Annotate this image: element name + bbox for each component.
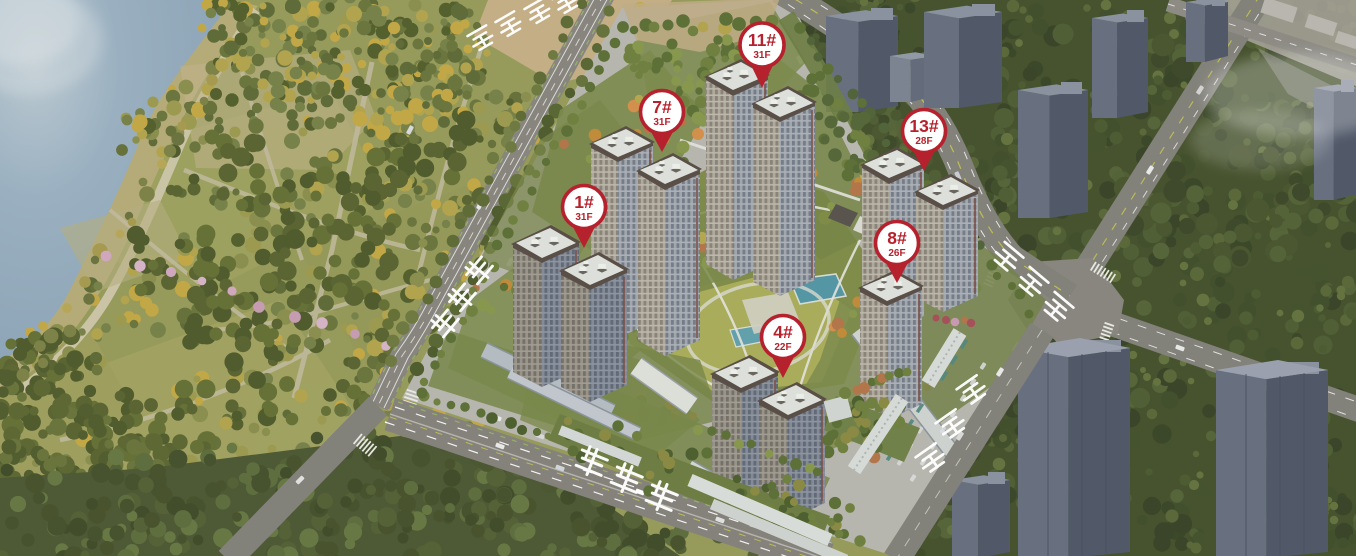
svg-text:31F: 31F bbox=[753, 50, 770, 61]
svg-text:4#: 4# bbox=[773, 322, 793, 342]
svg-text:1#: 1# bbox=[574, 192, 594, 212]
svg-text:28F: 28F bbox=[915, 136, 932, 147]
svg-text:31F: 31F bbox=[653, 117, 670, 128]
svg-text:22F: 22F bbox=[774, 342, 791, 353]
svg-text:31F: 31F bbox=[575, 212, 592, 223]
svg-text:8#: 8# bbox=[887, 228, 907, 248]
svg-text:13#: 13# bbox=[909, 116, 938, 136]
svg-text:11#: 11# bbox=[748, 30, 776, 50]
svg-text:26F: 26F bbox=[888, 248, 905, 259]
svg-text:7#: 7# bbox=[652, 97, 672, 117]
